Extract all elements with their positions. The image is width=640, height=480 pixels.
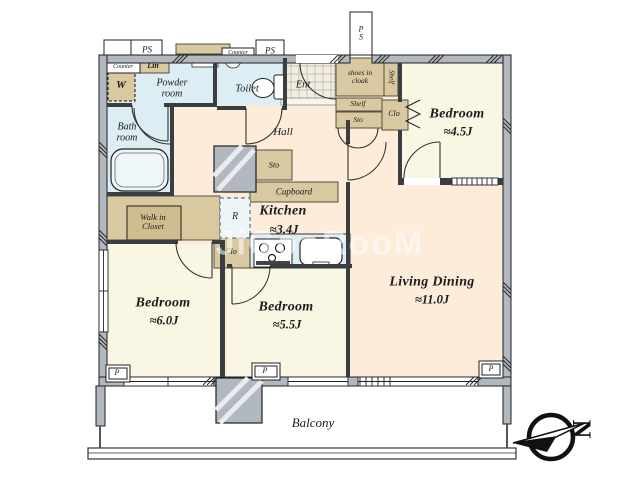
- pipe-label-2: P: [263, 367, 268, 375]
- walk-in-closet-label: Walk in Closet: [140, 213, 165, 231]
- pipe-label-3: P: [489, 365, 494, 373]
- room-label-living-dining: Living Dining: [389, 276, 474, 291]
- shelf-side-label: Shelf: [387, 70, 394, 84]
- pipe-label-1: P: [115, 369, 120, 377]
- linen-label: Lin: [147, 62, 159, 70]
- compass-north-letter: N: [566, 420, 596, 439]
- counter-label-toilet: Counter: [228, 50, 248, 56]
- counter-label-powder: Counter: [113, 64, 133, 70]
- ps-label-toilet: PS: [265, 46, 275, 55]
- sto-label-entry: Sto: [353, 116, 363, 124]
- room-label-bedroom-60: Bedroom: [136, 297, 191, 312]
- room-label-toilet: Toilet: [235, 83, 259, 94]
- room-label-kitchen: Kitchen: [259, 205, 306, 220]
- room-label-powder: Powder room: [156, 79, 187, 100]
- ps-shaft-label: P S: [359, 25, 364, 40]
- sto-label-kitchen: Sto: [269, 161, 280, 170]
- room-label-balcony: Balcony: [292, 416, 335, 430]
- room-label-hall: Hall: [273, 127, 293, 139]
- shelf-label: Shelf: [351, 100, 366, 108]
- size-label-bedroom-55: ≈5.5J: [273, 318, 302, 331]
- ps-label-left: PS: [142, 45, 152, 54]
- clo-label-entry: Clo: [388, 110, 400, 118]
- room-label-bedroom-55: Bedroom: [259, 301, 314, 316]
- floor-plan: PS PS P S Counter Counter Lin W Powder r…: [0, 0, 640, 480]
- size-label-bedroom-60: ≈6.0J: [150, 314, 179, 327]
- size-label-living-dining: ≈11.0J: [415, 293, 449, 306]
- cupboard-label: Cupboard: [276, 187, 312, 196]
- fridge-label: R: [232, 212, 238, 223]
- bathtub: [111, 149, 168, 191]
- room-label-bath: Bath room: [117, 123, 138, 144]
- room-label-ent: Ent: [296, 79, 311, 90]
- size-label-bedroom-45: ≈4.5J: [444, 125, 473, 138]
- watermark: JiGooRooM: [216, 225, 425, 264]
- shoes-in-cloak-label: shoes in cloak: [348, 69, 372, 85]
- washer-label: W: [116, 80, 126, 92]
- room-label-bedroom-45: Bedroom: [430, 108, 485, 123]
